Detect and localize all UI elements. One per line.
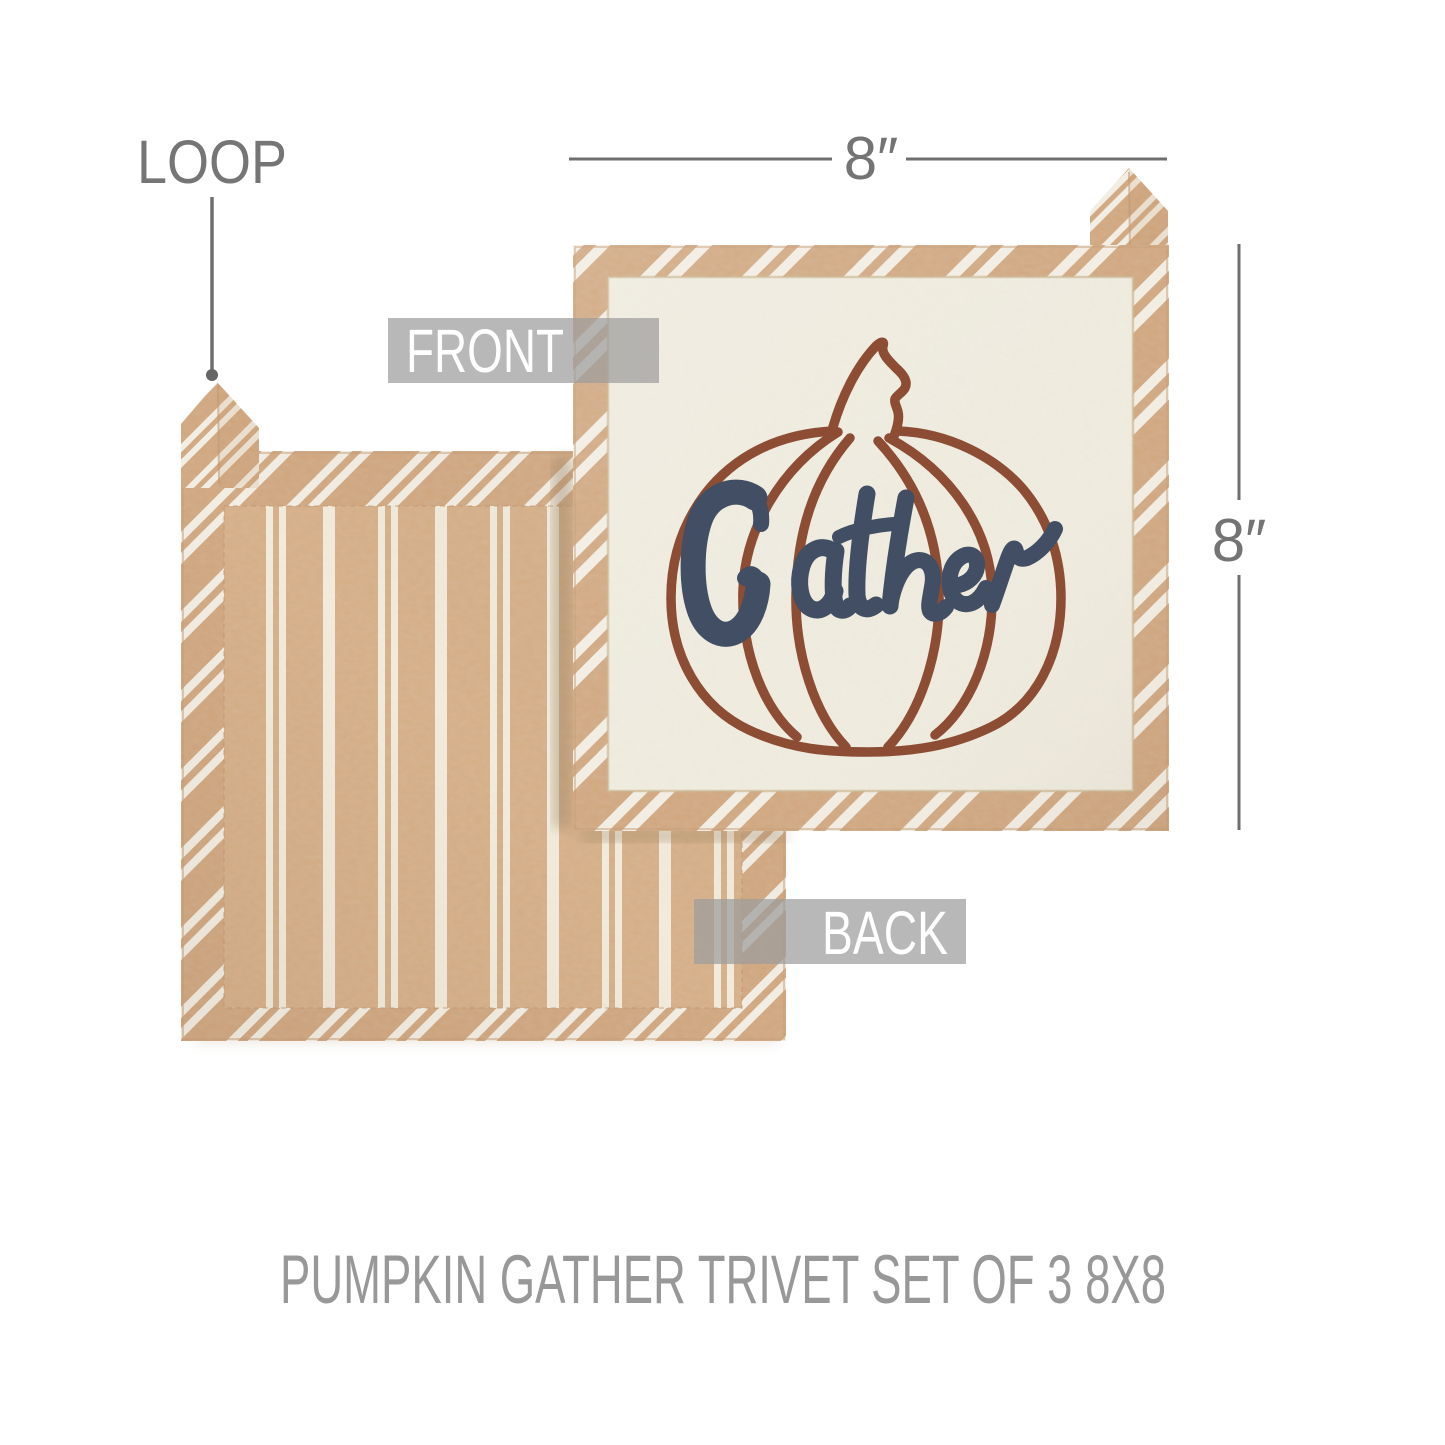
- svg-text:FRONT: FRONT: [406, 317, 564, 385]
- svg-text:PUMPKIN GATHER TRIVET SET OF 3: PUMPKIN GATHER TRIVET SET OF 3 8X8: [280, 1241, 1166, 1318]
- svg-text:LOOP: LOOP: [137, 128, 287, 196]
- svg-text:8″: 8″: [1212, 507, 1267, 574]
- svg-text:8″: 8″: [844, 125, 899, 192]
- svg-text:BACK: BACK: [822, 899, 948, 967]
